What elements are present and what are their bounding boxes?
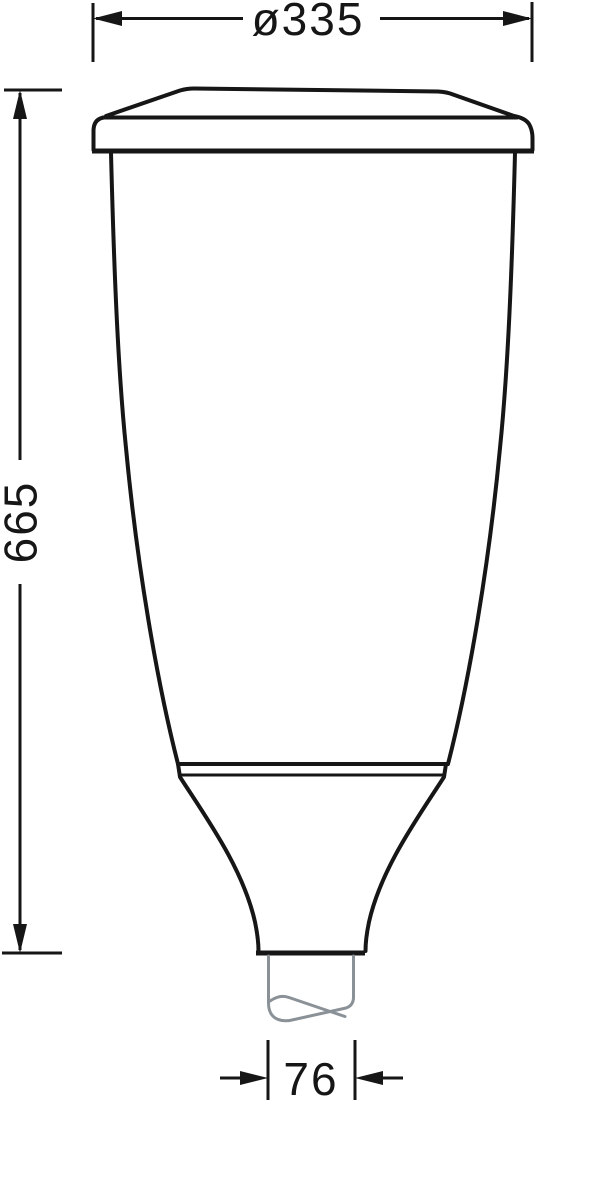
height-dimension: 665 bbox=[0, 90, 62, 953]
arrowhead-spigot-left bbox=[240, 1071, 268, 1085]
dimension-diameter-label: ø335 bbox=[252, 0, 365, 45]
luminaire-dimension-drawing: ø335 665 bbox=[0, 0, 606, 1200]
dimension-height-label: 665 bbox=[0, 481, 47, 564]
body-left-edge bbox=[111, 153, 178, 764]
body-right-edge bbox=[448, 153, 515, 764]
technical-drawing-canvas: ø335 665 bbox=[0, 0, 606, 1200]
arrowhead-diameter-left bbox=[93, 11, 122, 26]
pole-break-line bbox=[270, 996, 345, 1016]
arrowhead-diameter-right bbox=[503, 11, 532, 26]
dimension-spigot-label: 76 bbox=[283, 1053, 338, 1105]
spigot-dimension: 76 bbox=[220, 1040, 403, 1105]
funnel-left-edge bbox=[178, 764, 259, 951]
luminaire-outline bbox=[92, 89, 534, 954]
funnel-right-edge bbox=[366, 764, 447, 951]
diameter-dimension: ø335 bbox=[93, 0, 532, 62]
brim-right-edge bbox=[514, 116, 533, 150]
brim-left-edge bbox=[94, 118, 105, 151]
arrowhead-height-top bbox=[13, 90, 27, 119]
arrowhead-spigot-right bbox=[355, 1071, 383, 1085]
pole-left-and-bottom-edge bbox=[269, 956, 354, 1021]
lid-outline bbox=[106, 89, 514, 117]
arrowhead-height-bottom bbox=[13, 924, 27, 953]
mounting-pole bbox=[269, 956, 354, 1021]
